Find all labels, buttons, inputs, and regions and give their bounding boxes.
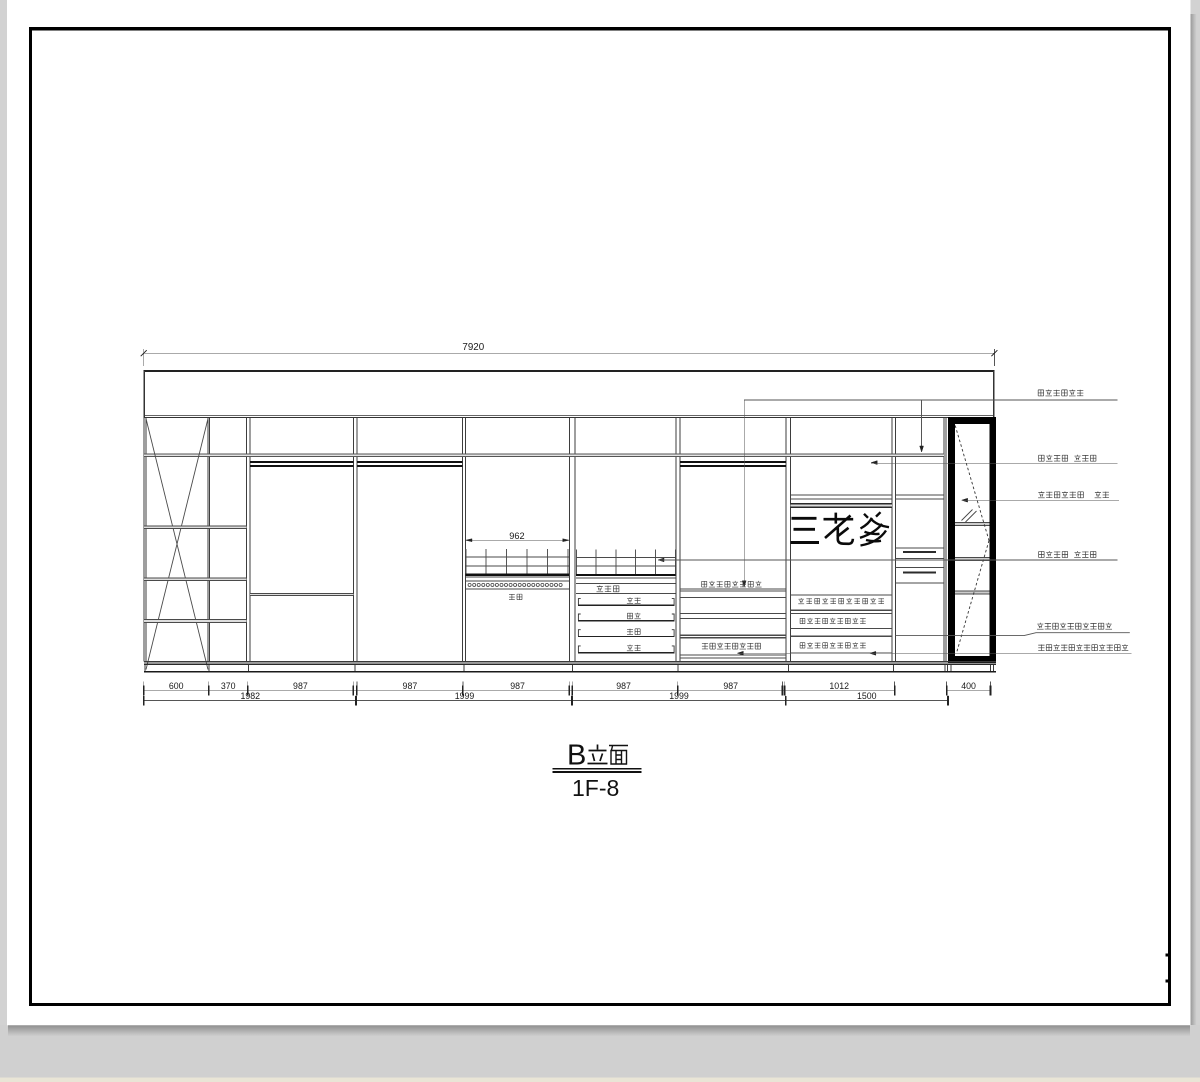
svg-text:B: B — [567, 740, 586, 772]
svg-text:600: 600 — [169, 681, 184, 691]
svg-text:987: 987 — [510, 681, 525, 691]
svg-text:987: 987 — [293, 681, 308, 691]
svg-text:1500: 1500 — [857, 691, 877, 701]
svg-text:400: 400 — [961, 681, 976, 691]
svg-text:1982: 1982 — [241, 691, 261, 701]
svg-text:1012: 1012 — [829, 681, 849, 691]
svg-text:962: 962 — [509, 531, 524, 541]
svg-text:1999: 1999 — [455, 691, 475, 701]
svg-text:1999: 1999 — [669, 691, 689, 701]
svg-text:987: 987 — [616, 681, 631, 691]
svg-text:370: 370 — [221, 681, 236, 691]
svg-text:1F-8: 1F-8 — [572, 775, 619, 801]
svg-text:7920: 7920 — [462, 342, 484, 353]
svg-text:987: 987 — [723, 681, 738, 691]
svg-text:987: 987 — [403, 681, 418, 691]
